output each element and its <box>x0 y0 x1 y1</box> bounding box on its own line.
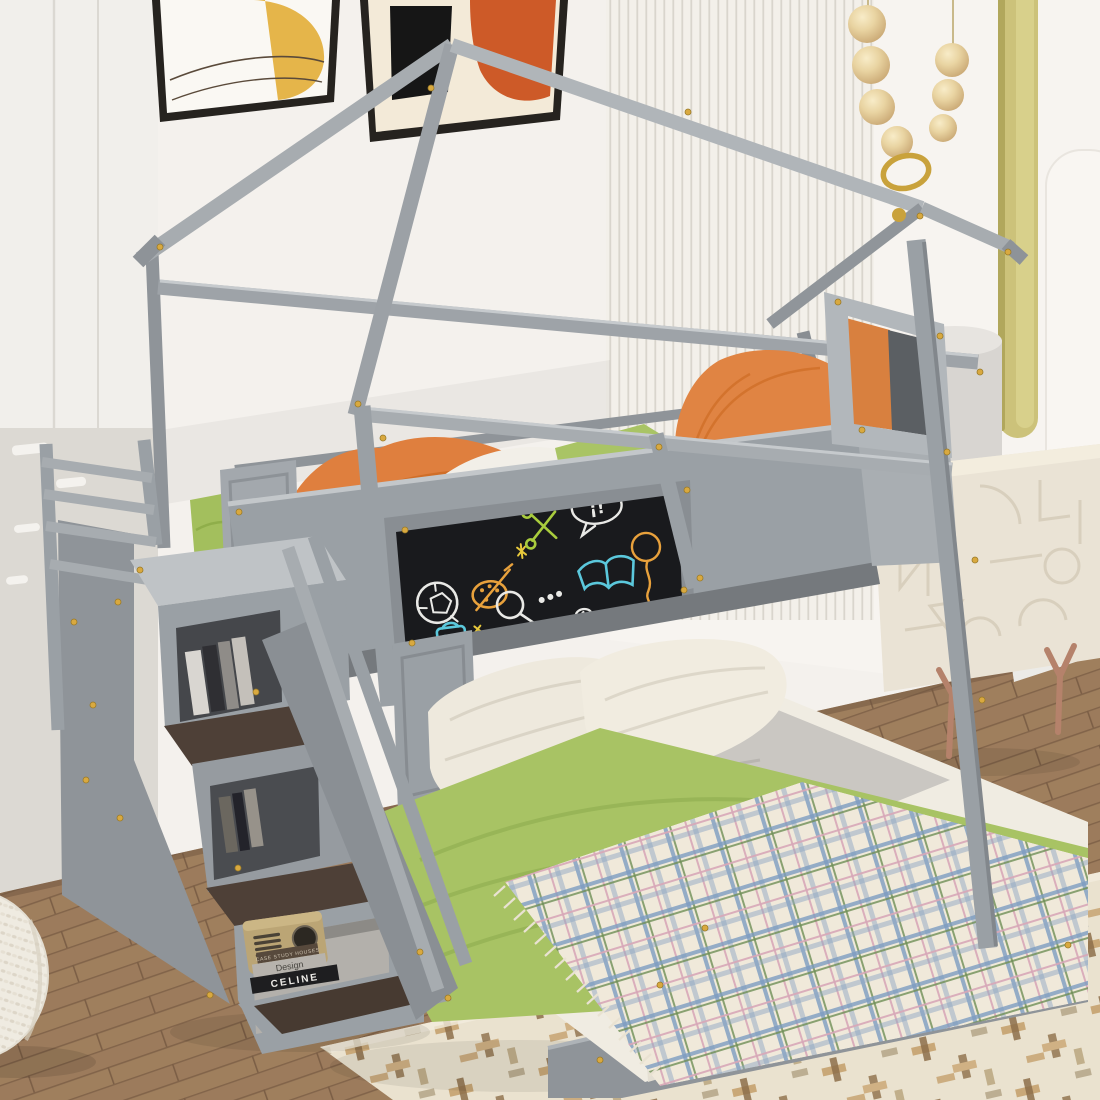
wood-bead <box>929 114 957 142</box>
wall-art-left <box>152 0 340 122</box>
bedroom-scene: ¡! <box>0 0 1100 1100</box>
gold-ball <box>892 208 906 222</box>
scene-canvas: ¡! <box>0 0 1100 1100</box>
wood-bead <box>848 5 886 43</box>
wood-bead <box>852 46 890 84</box>
wood-bead <box>932 79 964 111</box>
wood-bead <box>935 43 969 77</box>
accent-niche-highlight <box>1016 0 1034 428</box>
wood-bead <box>859 89 895 125</box>
